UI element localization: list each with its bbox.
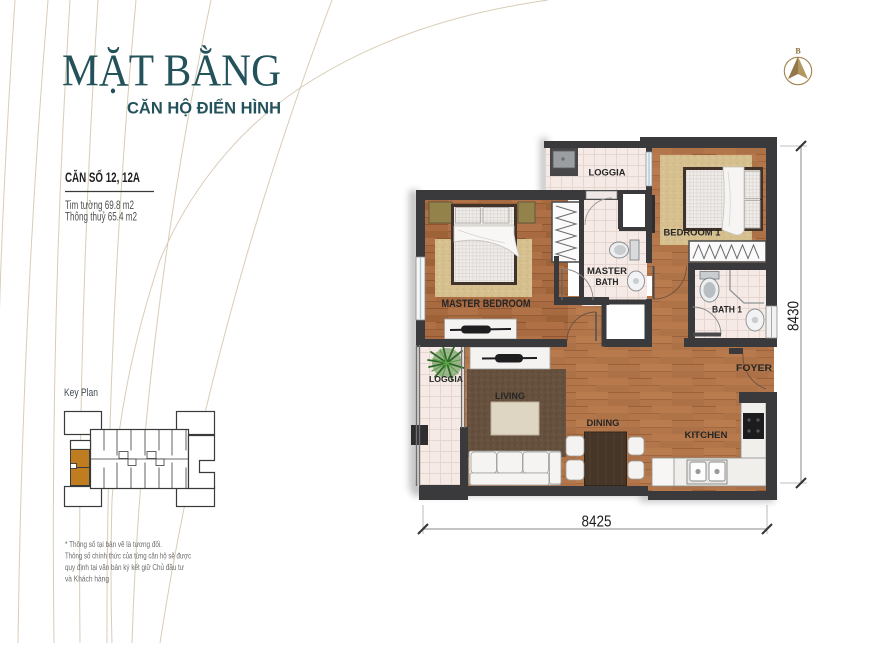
svg-text:KITCHEN: KITCHEN: [685, 430, 728, 440]
svg-text:MASTER BEDROOM: MASTER BEDROOM: [442, 298, 531, 310]
svg-text:BATH 1: BATH 1: [712, 305, 742, 315]
svg-text:CĂN HỘ ĐIỂN HÌNH: CĂN HỘ ĐIỂN HÌNH: [127, 99, 281, 118]
svg-text:BEDROOM 1: BEDROOM 1: [664, 228, 721, 238]
svg-text:FOYER: FOYER: [736, 363, 773, 373]
svg-text:CĂN SỐ 12, 12A: CĂN SỐ 12, 12A: [65, 168, 140, 185]
svg-text:LOGGIA: LOGGIA: [589, 168, 626, 179]
svg-text:MASTER: MASTER: [587, 266, 628, 276]
svg-text:quy định tại văn bản ký kết gi: quy định tại văn bản ký kết giữ Chủ đầu …: [65, 562, 184, 572]
svg-text:B: B: [795, 47, 801, 56]
svg-text:Thông số chính thức của từng c: Thông số chính thức của từng căn hộ sẽ đ…: [65, 551, 192, 561]
svg-text:LIVING: LIVING: [495, 391, 525, 401]
svg-text:* Thông số tại bản vẽ là tương: * Thông số tại bản vẽ là tương đối.: [65, 539, 162, 549]
svg-text:8430: 8430: [786, 301, 803, 331]
svg-text:BATH: BATH: [596, 277, 619, 287]
svg-text:MẶT BẰNG: MẶT BẰNG: [62, 46, 281, 96]
svg-text:8425: 8425: [582, 514, 612, 531]
svg-text:DINING: DINING: [587, 418, 620, 428]
svg-text:Thông thuỷ 65.4 m2: Thông thuỷ 65.4 m2: [65, 212, 137, 224]
svg-text:LOGGIA: LOGGIA: [429, 374, 463, 384]
svg-text:và Khách hàng: và Khách hàng: [65, 574, 109, 584]
svg-text:Tim tường 69.8 m2: Tim tường 69.8 m2: [65, 200, 134, 212]
svg-text:Key Plan: Key Plan: [64, 387, 98, 399]
